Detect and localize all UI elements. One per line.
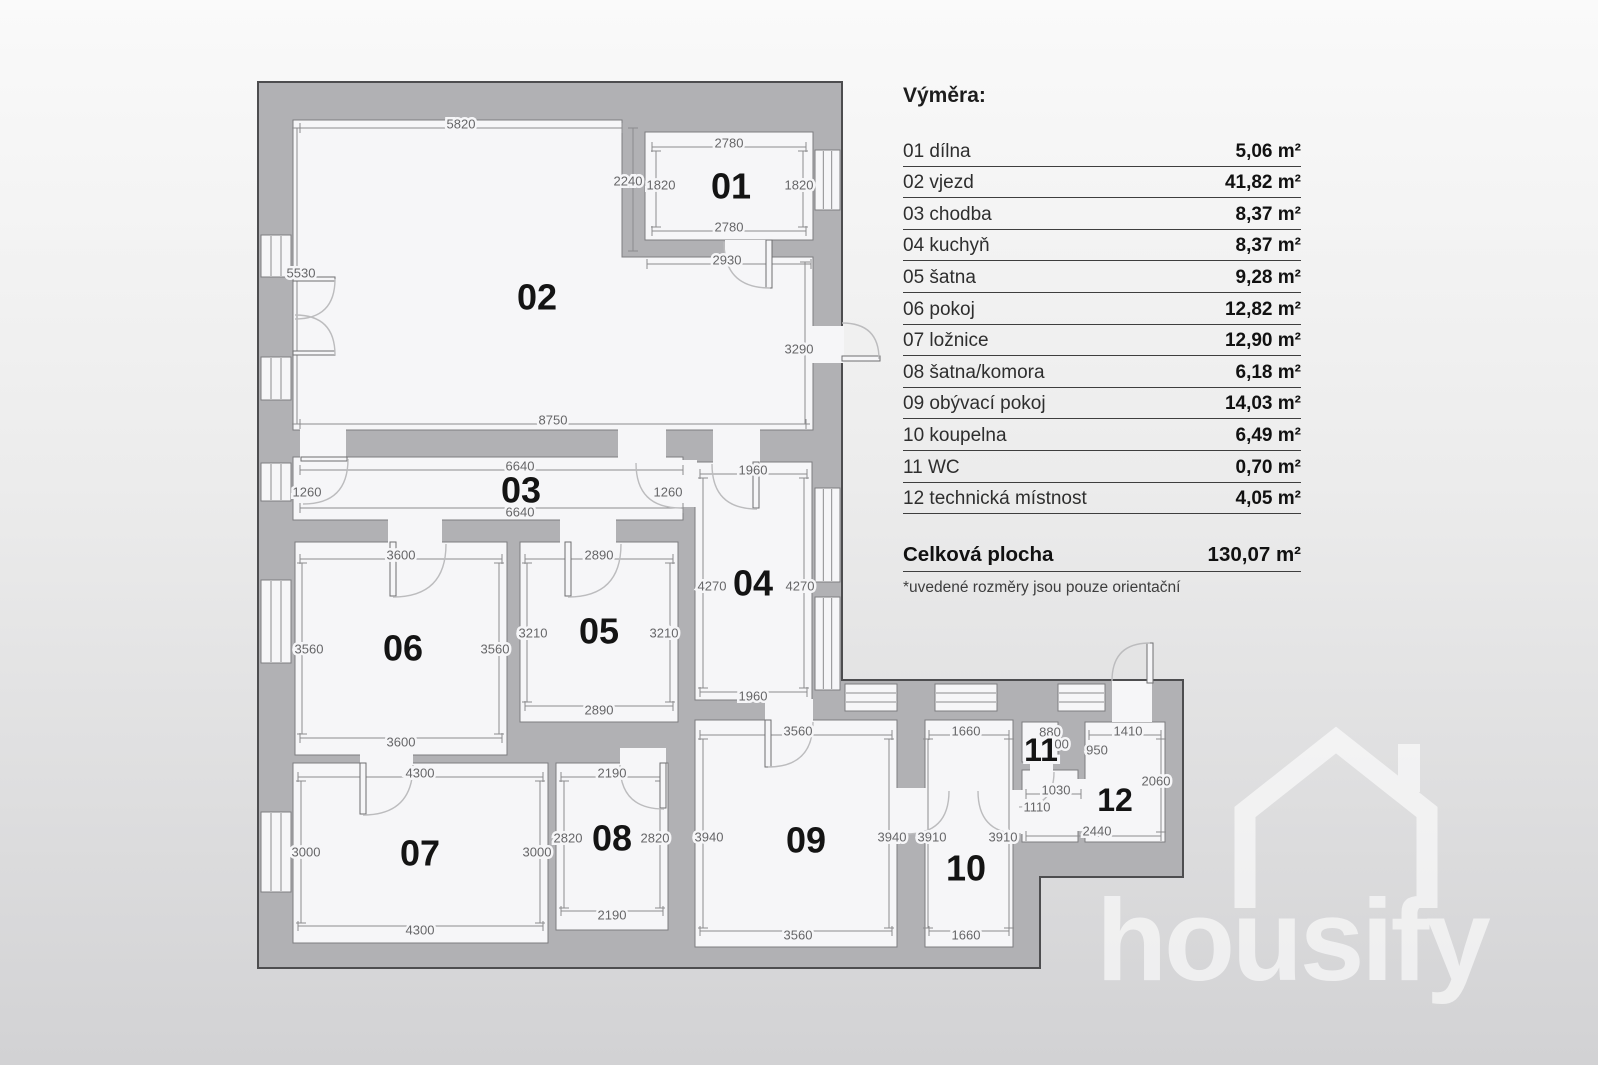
dim-label: 2190 [598,766,627,781]
wall-opening [1112,681,1152,722]
dim-label: 4270 [698,579,727,594]
window-icon [261,357,291,400]
room-area: 4,05 m² [1236,488,1301,510]
legend-row: 03 chodba8,37 m² [903,198,1301,230]
room-area: 12,90 m² [1225,330,1301,352]
dim-label: 2890 [585,703,614,718]
legend-note: *uvedené rozměry jsou pouze orientační [903,579,1301,597]
dim-label: 3290 [785,342,814,357]
dim-label: 3210 [650,626,679,641]
legend-rows: 01 dílna5,06 m²02 vjezd41,82 m²03 chodba… [903,135,1301,514]
window-icon [815,488,840,582]
legend-row: 06 pokoj12,82 m² [903,293,1301,325]
legend-row: 10 koupelna6,49 m² [903,419,1301,451]
room-area: 5,06 m² [1236,141,1301,163]
legend-row: 07 ložnice12,90 m² [903,325,1301,357]
room-area: 9,28 m² [1236,267,1301,289]
dim-label: 3000 [292,845,321,860]
dim-label: 3560 [784,724,813,739]
dim-label: 3560 [784,928,813,943]
wall-opening [895,788,927,834]
room-name: 04 kuchyň [903,235,990,257]
dim-label: 2820 [554,831,583,846]
room-number-12: 12 [1097,782,1133,818]
dim-label: 2890 [585,548,614,563]
dim-label: 1410 [1114,724,1143,739]
window-icon [815,597,840,690]
wall-opening [713,428,760,464]
room-name: 01 dílna [903,141,971,163]
legend-row: 02 vjezd41,82 m² [903,167,1301,199]
dim-label: 950 [1086,743,1108,758]
dim-label: 1820 [785,178,814,193]
dim-label: 1960 [739,689,768,704]
wall-opening [560,518,616,544]
dim-label: 3910 [989,830,1018,845]
window-icon [815,150,840,210]
room-name: 05 šatna [903,267,976,289]
dim-label: 3000 [523,845,552,860]
dim-label: 1030 [1042,783,1071,798]
room-number-07: 07 [400,833,440,874]
room-area: 6,49 m² [1236,425,1301,447]
room-name: 08 šatna/komora [903,362,1045,384]
room-area: 14,03 m² [1225,393,1301,415]
door-leaf [360,763,366,814]
room-number-11: 11 [1024,732,1058,768]
door-leaf [301,457,347,461]
dim-label: 3560 [295,642,324,657]
room-area: 8,37 m² [1236,204,1301,226]
legend-row: 05 šatna9,28 m² [903,261,1301,293]
dim-label: 4270 [786,579,815,594]
wall-opening [765,699,813,722]
area-legend: Výměra: 01 dílna5,06 m²02 vjezd41,82 m²0… [903,84,1301,597]
wall-opening [388,518,442,544]
dim-label: 1260 [654,485,683,500]
window-icon [845,684,897,711]
window-icon [261,812,291,892]
dim-label: 5820 [447,117,476,132]
room-03 [293,457,683,520]
room-name: 11 WC [903,457,960,479]
dim-label: 4300 [406,923,435,938]
room-number-01: 01 [711,166,751,207]
dim-label: 2780 [715,136,744,151]
dim-label: 4300 [406,766,435,781]
floor-plan: 5820278018201820278022402930553032908750… [0,0,1598,1065]
wall-opening [678,460,697,507]
dim-label: 3940 [695,830,724,845]
legend-total-row: Celková plocha 130,07 m² [903,539,1301,572]
door-leaf [660,763,666,808]
dim-label: 3560 [481,642,510,657]
door-leaf [1147,643,1153,683]
wall-opening [811,326,844,363]
room-name: 02 vjezd [903,172,974,194]
room-number-06: 06 [383,628,423,669]
window-icon [935,684,997,711]
legend-row: 01 dílna5,06 m² [903,135,1301,167]
dim-label: 2190 [598,908,627,923]
room-area: 41,82 m² [1225,172,1301,194]
room-number-04: 04 [733,563,773,604]
window-icon [1058,684,1105,711]
room-area: 0,70 m² [1236,457,1301,479]
dim-label: 1660 [952,928,981,943]
room-area: 6,18 m² [1236,362,1301,384]
dim-label: 3600 [387,735,416,750]
room-number-02: 02 [517,277,557,318]
wall-opening [300,428,346,460]
wall-opening [1011,790,1024,834]
room-name: 10 koupelna [903,425,1007,447]
room-name: 03 chodba [903,204,992,226]
legend-row: 09 obývací pokoj14,03 m² [903,388,1301,420]
legend-row: 11 WC0,70 m² [903,451,1301,483]
dim-label: 2240 [614,174,643,189]
door-leaf [766,240,772,288]
wall-opening [360,752,413,765]
floorplan-page: { "legend": { "title": "Výměra:", "rows"… [0,0,1598,1065]
dim-label: 2930 [713,253,742,268]
dim-label: 3910 [918,830,947,845]
room-area: 8,37 m² [1236,235,1301,257]
dim-label: 2060 [1142,774,1171,789]
door-leaf [842,356,880,361]
dim-label: 1260 [293,485,322,500]
dim-label: 5530 [287,266,316,281]
door-swing-arc [1112,643,1150,681]
dim-label: 2820 [641,831,670,846]
dim-label: 3600 [387,548,416,563]
dim-label: 2780 [715,220,744,235]
total-value: 130,07 m² [1208,543,1301,567]
door-leaf [765,720,771,767]
room-name: 07 ložnice [903,330,989,352]
room-area: 12,82 m² [1225,299,1301,321]
room-name: 06 pokoj [903,299,975,321]
room-name: 09 obývací pokoj [903,393,1046,415]
room-name: 12 technická místnost [903,488,1087,510]
room-number-08: 08 [592,818,632,859]
dim-label: 1960 [739,463,768,478]
legend-row: 08 šatna/komora6,18 m² [903,356,1301,388]
wall-opening [620,748,666,765]
dim-label: 2440 [1083,824,1112,839]
total-label: Celková plocha [903,543,1053,567]
door-swing-arc [842,323,879,359]
room-number-05: 05 [579,611,619,652]
wall-opening [618,428,666,461]
legend-row: 12 technická místnost4,05 m² [903,483,1301,515]
dim-label: 1820 [647,178,676,193]
room-number-03: 03 [501,470,541,511]
dim-label: 1660 [952,724,981,739]
door-leaf [293,351,335,355]
door-leaf [565,542,571,596]
legend-title: Výměra: [903,84,1301,108]
legend-row: 04 kuchyň8,37 m² [903,230,1301,262]
dim-label: 8750 [539,413,568,428]
dim-label: 3940 [878,830,907,845]
window-icon [261,580,291,663]
dim-label: 1110 [1024,800,1051,815]
window-icon [261,463,291,501]
room-number-09: 09 [786,820,826,861]
dim-label: 3210 [519,626,548,641]
room-number-10: 10 [946,848,986,889]
